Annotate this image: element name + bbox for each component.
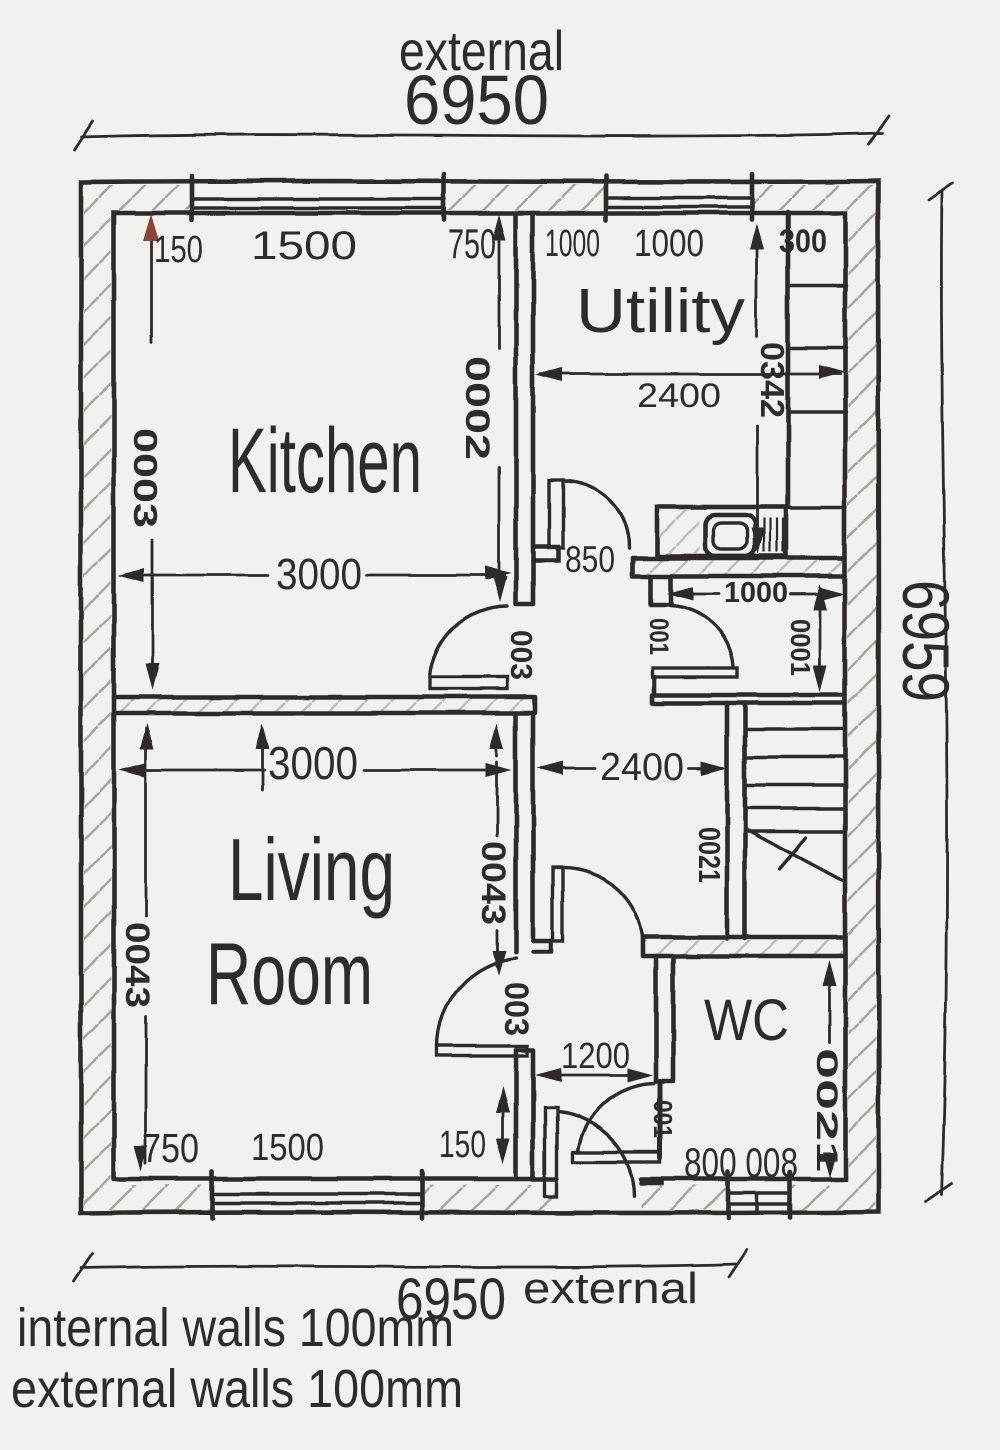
svg-text:0021: 0021 bbox=[692, 827, 727, 883]
svg-text:Living: Living bbox=[228, 820, 395, 919]
svg-text:3000: 3000 bbox=[276, 550, 362, 599]
svg-text:850: 850 bbox=[565, 539, 615, 580]
svg-text:1000: 1000 bbox=[634, 223, 704, 265]
svg-text:1000: 1000 bbox=[545, 223, 600, 265]
svg-text:internal walls 100mm: internal walls 100mm bbox=[17, 1298, 454, 1358]
svg-text:WC: WC bbox=[704, 988, 789, 1053]
svg-text:003: 003 bbox=[504, 630, 539, 680]
svg-text:1200: 1200 bbox=[561, 1035, 630, 1076]
svg-text:external walls 100mm: external walls 100mm bbox=[11, 1359, 463, 1419]
svg-text:150: 150 bbox=[439, 1124, 486, 1166]
svg-text:Room: Room bbox=[206, 924, 373, 1023]
svg-text:6950: 6950 bbox=[404, 61, 549, 139]
svg-text:300: 300 bbox=[779, 223, 827, 259]
svg-text:3000: 3000 bbox=[268, 737, 358, 789]
svg-text:001: 001 bbox=[648, 1100, 678, 1138]
svg-text:external: external bbox=[523, 1264, 698, 1313]
svg-text:150: 150 bbox=[154, 229, 203, 271]
svg-text:001: 001 bbox=[644, 618, 674, 655]
svg-text:0002: 0002 bbox=[458, 356, 496, 460]
svg-text:0021: 0021 bbox=[810, 1048, 843, 1172]
svg-text:Kitchen: Kitchen bbox=[228, 410, 422, 512]
svg-text:750: 750 bbox=[142, 1125, 199, 1171]
svg-text:2400: 2400 bbox=[637, 377, 721, 415]
svg-text:0003: 0003 bbox=[127, 428, 164, 528]
svg-text:1500: 1500 bbox=[251, 1127, 324, 1169]
svg-text:003: 003 bbox=[497, 982, 535, 1036]
svg-text:0043: 0043 bbox=[118, 922, 156, 1008]
svg-text:6959: 6959 bbox=[889, 580, 963, 702]
svg-text:800 008: 800 008 bbox=[684, 1139, 798, 1186]
svg-text:Utility: Utility bbox=[576, 277, 745, 346]
svg-text:0342: 0342 bbox=[754, 342, 791, 418]
svg-text:750: 750 bbox=[448, 220, 496, 267]
svg-text:2400: 2400 bbox=[600, 746, 684, 789]
svg-text:0043: 0043 bbox=[474, 841, 512, 925]
svg-text:1000: 1000 bbox=[724, 577, 788, 609]
svg-text:0001: 0001 bbox=[785, 619, 816, 676]
svg-text:1500: 1500 bbox=[251, 224, 357, 268]
